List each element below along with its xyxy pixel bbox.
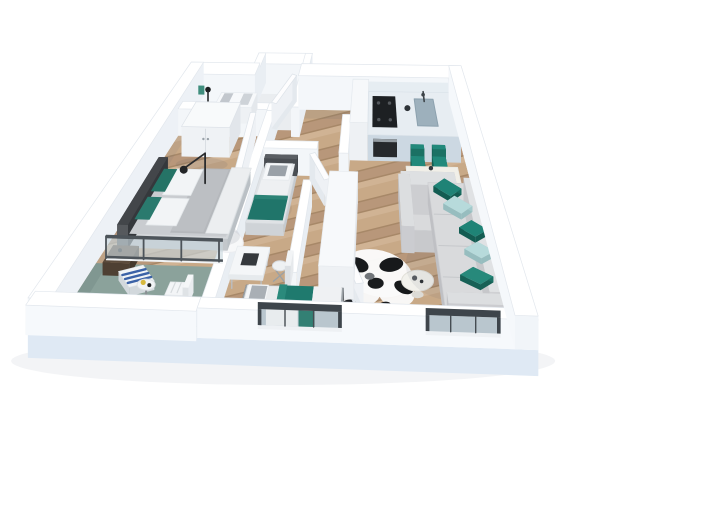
wall-art-green <box>198 86 204 95</box>
oven-handle <box>373 139 397 143</box>
wardrobe-knob <box>207 138 209 140</box>
cooktop-burner <box>377 101 380 104</box>
kitchen-tall-cabinet-face <box>350 122 368 160</box>
cooktop-burner <box>389 118 392 121</box>
cooktop-burner <box>377 118 380 121</box>
kids-bed-1-pillow-inner <box>267 165 288 176</box>
wall-right-face <box>515 315 538 350</box>
bottle <box>429 166 433 170</box>
window-frame-jamb <box>497 318 501 334</box>
bistro-plate-yellow <box>141 280 146 285</box>
faucet-base <box>421 93 425 97</box>
sofa-arm-bottom-top <box>447 292 510 305</box>
floorplan-canvas <box>0 0 712 512</box>
kettle <box>404 105 410 111</box>
bistro-table <box>137 279 155 290</box>
dining-chair-back-top <box>411 144 425 149</box>
kids-bed-1-headboard-top <box>264 154 298 159</box>
floorplan-3d-render <box>0 0 712 512</box>
cooktop <box>372 96 397 128</box>
window-frame-jamb <box>338 312 342 328</box>
cowhide-patch-gray <box>365 273 375 280</box>
window-glass <box>426 315 501 334</box>
wall-wc-right-face <box>291 107 300 137</box>
cooktop-burner <box>388 101 391 104</box>
kitchen-tall-cabinet-top <box>350 79 369 123</box>
kids-bed-1-face <box>245 223 283 236</box>
window-curtain-teal <box>299 311 315 328</box>
wall-kids-far-top <box>263 140 318 149</box>
desk-chair-back-face <box>285 266 291 286</box>
coffee-table-base <box>412 291 424 298</box>
bistro-item-black <box>147 283 151 287</box>
window-frame-jamb <box>258 309 262 325</box>
wardrobe-knob <box>202 138 204 140</box>
wall-far-right-top <box>298 64 464 79</box>
sofa-arm-left-face <box>402 226 415 253</box>
window-curtain-white <box>266 309 298 326</box>
dining-chair-back-top <box>432 145 446 150</box>
window-frame-jamb <box>426 315 430 331</box>
floor-lamp-shade <box>180 166 188 174</box>
